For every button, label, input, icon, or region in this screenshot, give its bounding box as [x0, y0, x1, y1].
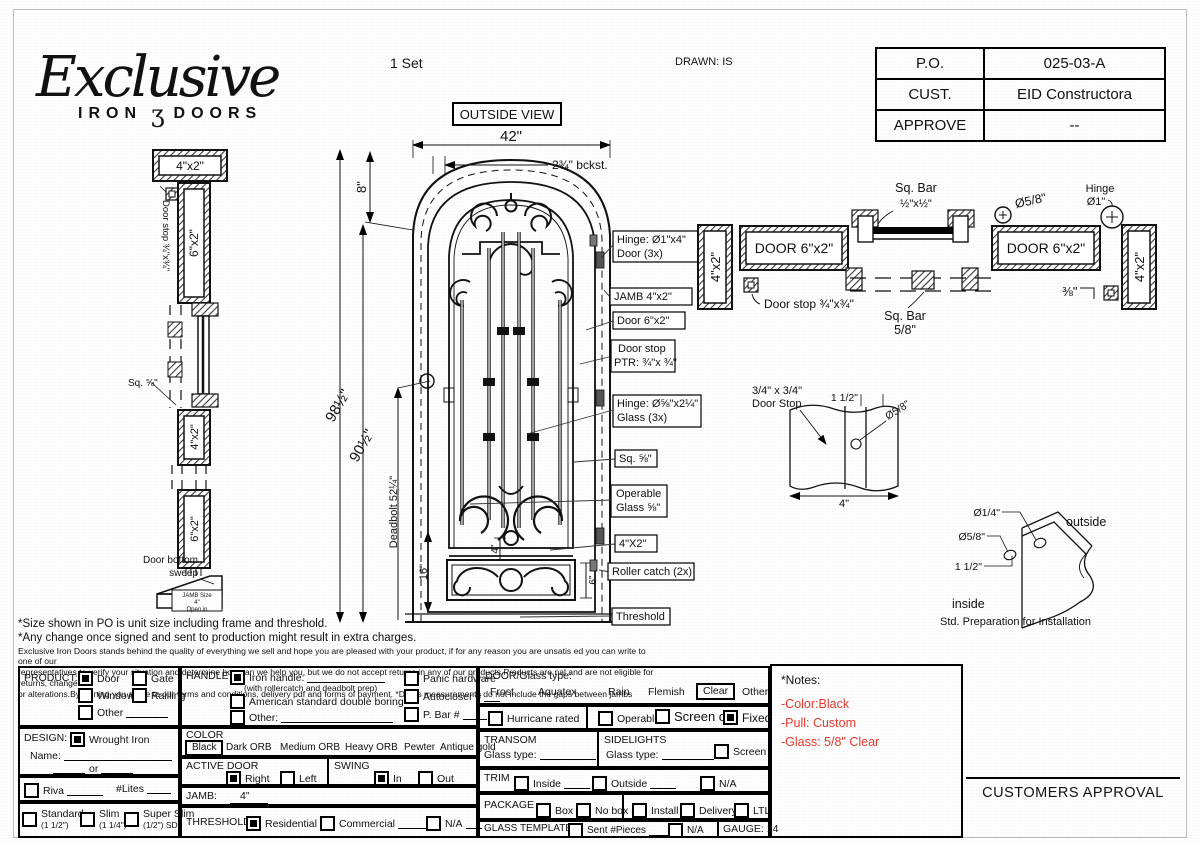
doorstop-detail: 3/4" x 3/4" Door Stop 1 1/2" Ø5/8" 4": [752, 385, 912, 510]
ltl-checkbox[interactable]: [734, 803, 749, 818]
superslim-checkbox[interactable]: [124, 812, 139, 827]
disclaimer-line: *Any change once signed and sent to prod…: [18, 631, 658, 645]
callout-hinge-glass-2: Glass (3x): [617, 412, 667, 424]
standard-checkbox[interactable]: [22, 812, 37, 827]
spec-sheet: 4"x2" Door stop ¾"x¾" 6"x2" Sq. ⅝" 4"x2": [0, 0, 1200, 843]
active-right-option[interactable]: Right: [226, 771, 270, 786]
pbar-option[interactable]: P. Bar #: [404, 707, 487, 722]
side-jambsize-label-3: Open in: [186, 607, 207, 613]
threshold-na-option[interactable]: N/A: [426, 816, 482, 831]
plan-door-right: DOOR 6"x2": [1007, 240, 1085, 256]
side-lower-box-label: 6"x2": [189, 516, 201, 542]
swing-in-option[interactable]: In: [374, 771, 402, 786]
swing-title: SWING: [334, 760, 370, 772]
american-boring-option[interactable]: American standard double boring: [230, 694, 404, 709]
side-top-box-label: 4"x2": [176, 159, 204, 173]
handle-title: HANDLE: [186, 670, 229, 682]
nobox-checkbox[interactable]: [576, 803, 591, 818]
product-section: PRODUCT: Door Gate Window Railling Other: [18, 666, 180, 727]
box-checkbox[interactable]: [536, 803, 551, 818]
handle-other-checkbox[interactable]: [230, 710, 245, 725]
plan-door-left: DOOR 6"x2": [755, 240, 833, 256]
swing-out-option[interactable]: Out: [418, 771, 454, 786]
trim-title: TRIM: [484, 772, 510, 784]
cust-value: EID Constructora: [985, 80, 1164, 109]
notes-title: *Notes:: [781, 673, 952, 687]
design-title: DESIGN:: [24, 732, 67, 744]
sidelights-glass-field[interactable]: Glass type:: [606, 749, 714, 761]
side-sweep-label-2: sweep: [169, 568, 198, 579]
note-color: -Color:Black: [781, 695, 952, 714]
color-darkorb-option[interactable]: Dark ORB: [226, 742, 272, 753]
handle-section: HANDLE Iron handle: (with rollercatch an…: [180, 666, 478, 727]
commercial-checkbox[interactable]: [320, 816, 335, 831]
plan-jamb-right: 4"x2": [1132, 252, 1147, 283]
stop-detail-width: 4": [839, 498, 849, 510]
logo-scroll-icon: ʒ: [151, 100, 165, 128]
elevation-callouts: Hinge: Ø1"x4" Door (3x) JAMB 4"x2" Door …: [470, 231, 701, 625]
dim-door-height: 90½": [346, 427, 378, 465]
install-detail: Ø1/4" Ø5/8" 1 1/2" outside inside Std. P…: [940, 507, 1106, 628]
slim-checkbox[interactable]: [80, 812, 95, 827]
install-dia58: Ø5/8": [959, 531, 986, 543]
callout-doorstop-2: PTR: ¾"x ¾": [614, 357, 677, 369]
dim-bottom: 16": [418, 564, 430, 580]
stop-detail-dia: Ø5/8": [883, 398, 912, 422]
po-row: P.O. 025-03-A: [877, 49, 1164, 80]
install-dim: 1 1/2": [955, 561, 982, 573]
color-heavyorb-option[interactable]: Heavy ORB: [345, 742, 398, 753]
jamb-value[interactable]: 4": [230, 790, 268, 804]
right-checkbox[interactable]: [226, 771, 241, 786]
glass-type-title: DOOR/Glass type:: [485, 670, 572, 682]
hurricane-section: Hurricane rated Operable Screen or Fixed: [478, 705, 770, 730]
po-value: 025-03-A: [985, 49, 1164, 78]
stop-detail-label-1: 3/4" x 3/4": [752, 385, 802, 397]
side-sweep-label-1: Door bottom: [143, 555, 198, 566]
wrought-iron-checkbox[interactable]: [70, 732, 85, 747]
glass-rain-option[interactable]: Rain: [608, 686, 630, 698]
sent-checkbox[interactable]: [568, 823, 583, 838]
operable-checkbox[interactable]: [598, 711, 613, 726]
install-outside: outside: [1066, 515, 1106, 529]
side-jambsize-label-1: JAMB Size: [182, 593, 212, 599]
plan-dia58-label: Ø5/8": [1014, 191, 1048, 211]
approve-value: --: [985, 111, 1164, 140]
package-delivery-option[interactable]: Delivery: [680, 803, 737, 818]
glass-template-section: GLASS TEMPLATE Sent #Pieces N/A GAUGE: 1…: [478, 820, 770, 838]
threshold-title: THRESHOLD: [186, 816, 251, 828]
logo-doors-text: DOORS: [174, 105, 263, 123]
po-row: APPROVE --: [877, 111, 1164, 140]
riva-section: Riva #Lites: [18, 776, 180, 802]
design-section: DESIGN: Wrought Iron Name: or: [18, 727, 180, 776]
color-pewter-option[interactable]: Pewter: [404, 742, 435, 753]
callout-doorstop: Door stop: [618, 343, 666, 355]
transom-title: TRANSOM: [484, 734, 537, 746]
standard-option[interactable]: Standard(1 1/2"): [22, 809, 84, 830]
set-count: 1 Set: [390, 55, 423, 71]
glass-type-section: DOOR/Glass type: Frost Aquatex Rain Flem…: [478, 666, 770, 705]
dim-arch: 8": [354, 181, 369, 193]
divider: [586, 707, 588, 728]
product-gate-option[interactable]: Gate: [132, 671, 174, 686]
bottom-panel: [447, 560, 575, 600]
glass-flemish-option[interactable]: Flemish: [648, 686, 685, 698]
plan-dim38: ⅜": [1062, 284, 1078, 299]
disclaimer-line: Exclusive Iron Doors stands behind the q…: [18, 646, 658, 667]
american-boring-checkbox[interactable]: [230, 694, 245, 709]
install-inside: inside: [952, 597, 985, 611]
package-ltl-option[interactable]: LTL: [734, 803, 770, 818]
trim-outside-checkbox[interactable]: [592, 776, 607, 791]
side-upper-box-label: 6"x2": [187, 229, 201, 257]
panic-checkbox[interactable]: [404, 671, 419, 686]
package-section: PACKAGE Box No box Install Delivery LTL: [478, 793, 770, 820]
po-label: P.O.: [877, 49, 985, 78]
color-section: COLOR Black Dark ORB Medium ORB Heavy OR…: [180, 727, 478, 757]
plan-sqbar-top-2: ½"x½": [900, 198, 932, 210]
callout-door: Door 6"x2": [617, 315, 670, 327]
sidelights-screen-option[interactable]: Screen: [714, 744, 766, 759]
in-checkbox[interactable]: [374, 771, 389, 786]
trim-inside-option[interactable]: Inside: [514, 776, 590, 791]
package-box-option[interactable]: Box: [536, 803, 573, 818]
trim-na-checkbox[interactable]: [700, 776, 715, 791]
note-glass: -Glass: 5/8" Clear: [781, 733, 952, 752]
commercial-option[interactable]: Commercial: [320, 816, 436, 831]
outside-view-label: OUTSIDE VIEW: [452, 102, 562, 126]
threshold-section: THRESHOLD Residential Commercial N/A: [180, 806, 478, 838]
hurricane-checkbox[interactable]: [488, 711, 503, 726]
lites-field[interactable]: #Lites: [116, 783, 171, 795]
threshold-na-checkbox[interactable]: [426, 816, 441, 831]
company-logo: Exclusive IRON ʒ DOORS: [36, 50, 278, 128]
pbar-checkbox[interactable]: [404, 707, 419, 722]
product-door-option[interactable]: Door: [78, 671, 120, 686]
glass-aquatex-option[interactable]: Aquatex: [538, 686, 577, 698]
product-title: PRODUCT:: [24, 672, 78, 684]
callout-operable: Operable: [616, 488, 661, 500]
callout-hinge-door-2: Door (3x): [617, 248, 663, 260]
plan-sqbar-top-1: Sq. Bar: [895, 181, 937, 195]
drawn-by: DRAWN: IS: [675, 56, 733, 68]
railing-checkbox[interactable]: [132, 688, 147, 703]
color-mediumorb-option[interactable]: Medium ORB: [280, 742, 340, 753]
divider: [597, 732, 599, 766]
thickness-section: Standard(1 1/2") Slim(1 1/4") Super Slim…: [18, 802, 180, 838]
iron-handle-checkbox[interactable]: [230, 670, 245, 685]
notes-box: *Notes: -Color:Black -Pull: Custom -Glas…: [770, 664, 963, 838]
product-other-option[interactable]: Other: [78, 705, 168, 720]
dim-backset: 2¾" bckst.: [552, 158, 608, 172]
plan-jamb-left: 4"x2": [708, 252, 723, 283]
callout-4x2: 4"X2": [619, 538, 646, 550]
package-nobox-option[interactable]: No box: [576, 803, 628, 818]
plan-hinge-label-2: Ø1": [1087, 196, 1106, 208]
signature-line[interactable]: [966, 777, 1180, 779]
callout-roller: Roller catch (2x): [612, 566, 692, 578]
stop-detail-dim: 1 1/2": [831, 392, 858, 404]
side-profile-view: 4"x2" Door stop ¾"x¾" 6"x2" Sq. ⅝" 4"x2": [128, 150, 227, 613]
plan-sqbar-bot-1: Sq. Bar: [884, 309, 926, 323]
active-swing-section: ACTIVE DOOR Right Left SWING In Out: [180, 757, 478, 786]
active-left-option[interactable]: Left: [280, 771, 317, 786]
side-sq-label: Sq. ⅝": [128, 378, 158, 389]
transom-glass-field[interactable]: Glass type:: [484, 749, 596, 761]
template-na-checkbox[interactable]: [668, 823, 683, 838]
window-checkbox[interactable]: [78, 688, 93, 703]
callout-jamb: JAMB 4"x2": [614, 291, 672, 303]
package-title: PACKAGE: [484, 799, 534, 811]
design-or-divider: or: [50, 763, 133, 775]
customers-approval: CUSTOMERS APPROVAL: [966, 777, 1180, 801]
template-na-option[interactable]: N/A: [668, 823, 704, 838]
left-checkbox[interactable]: [280, 771, 295, 786]
sidelights-title: SIDELIGHTS: [604, 734, 666, 746]
plan-view: Sq. Bar ½"x½" 4"x2" DOOR 6"x2" Door stop…: [698, 181, 1156, 337]
dim-total-height: 98½": [322, 387, 354, 425]
dim-width: 42": [500, 128, 522, 145]
stop-detail-label-2: Door Stop: [752, 398, 802, 410]
glass-other-option[interactable]: Other: [742, 686, 768, 698]
note-pull: -Pull: Custom: [781, 714, 952, 733]
handle-other-option[interactable]: Other:: [230, 710, 393, 725]
install-checkbox[interactable]: [632, 803, 647, 818]
residential-option[interactable]: Residential: [246, 816, 317, 831]
po-table: P.O. 025-03-A CUST. EID Constructora APP…: [875, 47, 1166, 142]
operable-option[interactable]: Operable: [598, 711, 660, 726]
glass-clear-option[interactable]: Clear: [696, 683, 735, 700]
color-black-option[interactable]: Black: [185, 740, 223, 756]
door-checkbox[interactable]: [78, 671, 93, 686]
package-install-option[interactable]: Install: [632, 803, 678, 818]
sidelights-screen-checkbox[interactable]: [714, 744, 729, 759]
door-elevation: 42" 2¾" bckst. 8" 98½" 90½" Deadbolt 52¼…: [322, 128, 618, 622]
logo-script-text: Exclusive: [36, 50, 278, 106]
template-sent-option[interactable]: Sent #Pieces: [568, 823, 677, 838]
autocloser-checkbox[interactable]: [404, 689, 419, 704]
trim-inside-checkbox[interactable]: [514, 776, 529, 791]
approval-label: CUSTOMERS APPROVAL: [966, 785, 1180, 801]
divider: [717, 822, 719, 836]
callout-hinge-glass: Hinge: Ø⅝"x2¼": [617, 398, 698, 410]
po-row: CUST. EID Constructora: [877, 80, 1164, 111]
jamb-section: JAMB: 4": [180, 786, 478, 806]
hurricane-option[interactable]: Hurricane rated: [488, 711, 579, 726]
dim-panel: 6": [588, 575, 599, 585]
cust-label: CUST.: [877, 80, 985, 109]
side-mid-box-label: 4"x2": [189, 424, 201, 450]
side-jambsize-label-2: 4": [194, 600, 199, 606]
residential-checkbox[interactable]: [246, 816, 261, 831]
glass-template-title: GLASS TEMPLATE: [484, 823, 572, 834]
plan-sqbar-bot-2: 5/8": [894, 323, 916, 337]
dim-deadbolt: Deadbolt 52¼": [388, 476, 400, 548]
trim-section: TRIM Inside Outside N/A: [478, 768, 770, 793]
callout-operable-2: Glass ⅝": [616, 502, 660, 514]
install-caption: Std. Preparation for Installation: [940, 616, 1091, 628]
product-window-option[interactable]: Window: [78, 688, 134, 703]
install-dia14: Ø1/4": [974, 507, 1001, 519]
design-name-field[interactable]: Name:: [30, 750, 172, 762]
out-checkbox[interactable]: [418, 771, 433, 786]
gate-checkbox[interactable]: [132, 671, 147, 686]
delivery-checkbox[interactable]: [680, 803, 695, 818]
other-checkbox[interactable]: [78, 705, 93, 720]
disclaimer-line: *Size shown in PO is unit size including…: [18, 617, 658, 631]
approve-label: APPROVE: [877, 111, 985, 140]
product-railing-option[interactable]: Railling: [132, 688, 185, 703]
slim-option[interactable]: Slim(1 1/4"): [80, 809, 127, 830]
grille-ornament: [450, 193, 572, 545]
logo-iron-text: IRON: [78, 105, 142, 123]
callout-sq: Sq. ⅝": [619, 453, 652, 465]
glass-frost-option[interactable]: Frost: [490, 686, 514, 698]
iron-handle-subtext: (with rollercatch and deadbolt prep): [244, 683, 377, 693]
divider: [327, 759, 329, 784]
design-wrought-option[interactable]: Wrought Iron: [70, 732, 150, 747]
screen-or-option[interactable]: Screen or: [655, 709, 730, 724]
trim-outside-option[interactable]: Outside: [592, 776, 676, 791]
jamb-title: JAMB:: [186, 790, 217, 802]
plan-doorstop-label: Door stop ¾"x¾": [764, 297, 854, 311]
transom-sidelights-section: TRANSOM Glass type: SIDELIGHTS Glass typ…: [478, 730, 770, 768]
side-doorstop-label: Door stop ¾"x¾": [160, 200, 171, 271]
trim-na-option[interactable]: N/A: [700, 776, 737, 791]
fixed-option[interactable]: Fixed: [723, 710, 771, 725]
riva-option[interactable]: Riva: [24, 783, 103, 798]
plan-hinge-label-1: Hinge: [1086, 183, 1115, 195]
callout-hinge-door: Hinge: Ø1"x4": [617, 234, 686, 246]
riva-checkbox[interactable]: [24, 783, 39, 798]
dim-gap: 4": [490, 544, 501, 554]
screen-checkbox[interactable]: [655, 709, 670, 724]
fixed-checkbox[interactable]: [723, 710, 738, 725]
